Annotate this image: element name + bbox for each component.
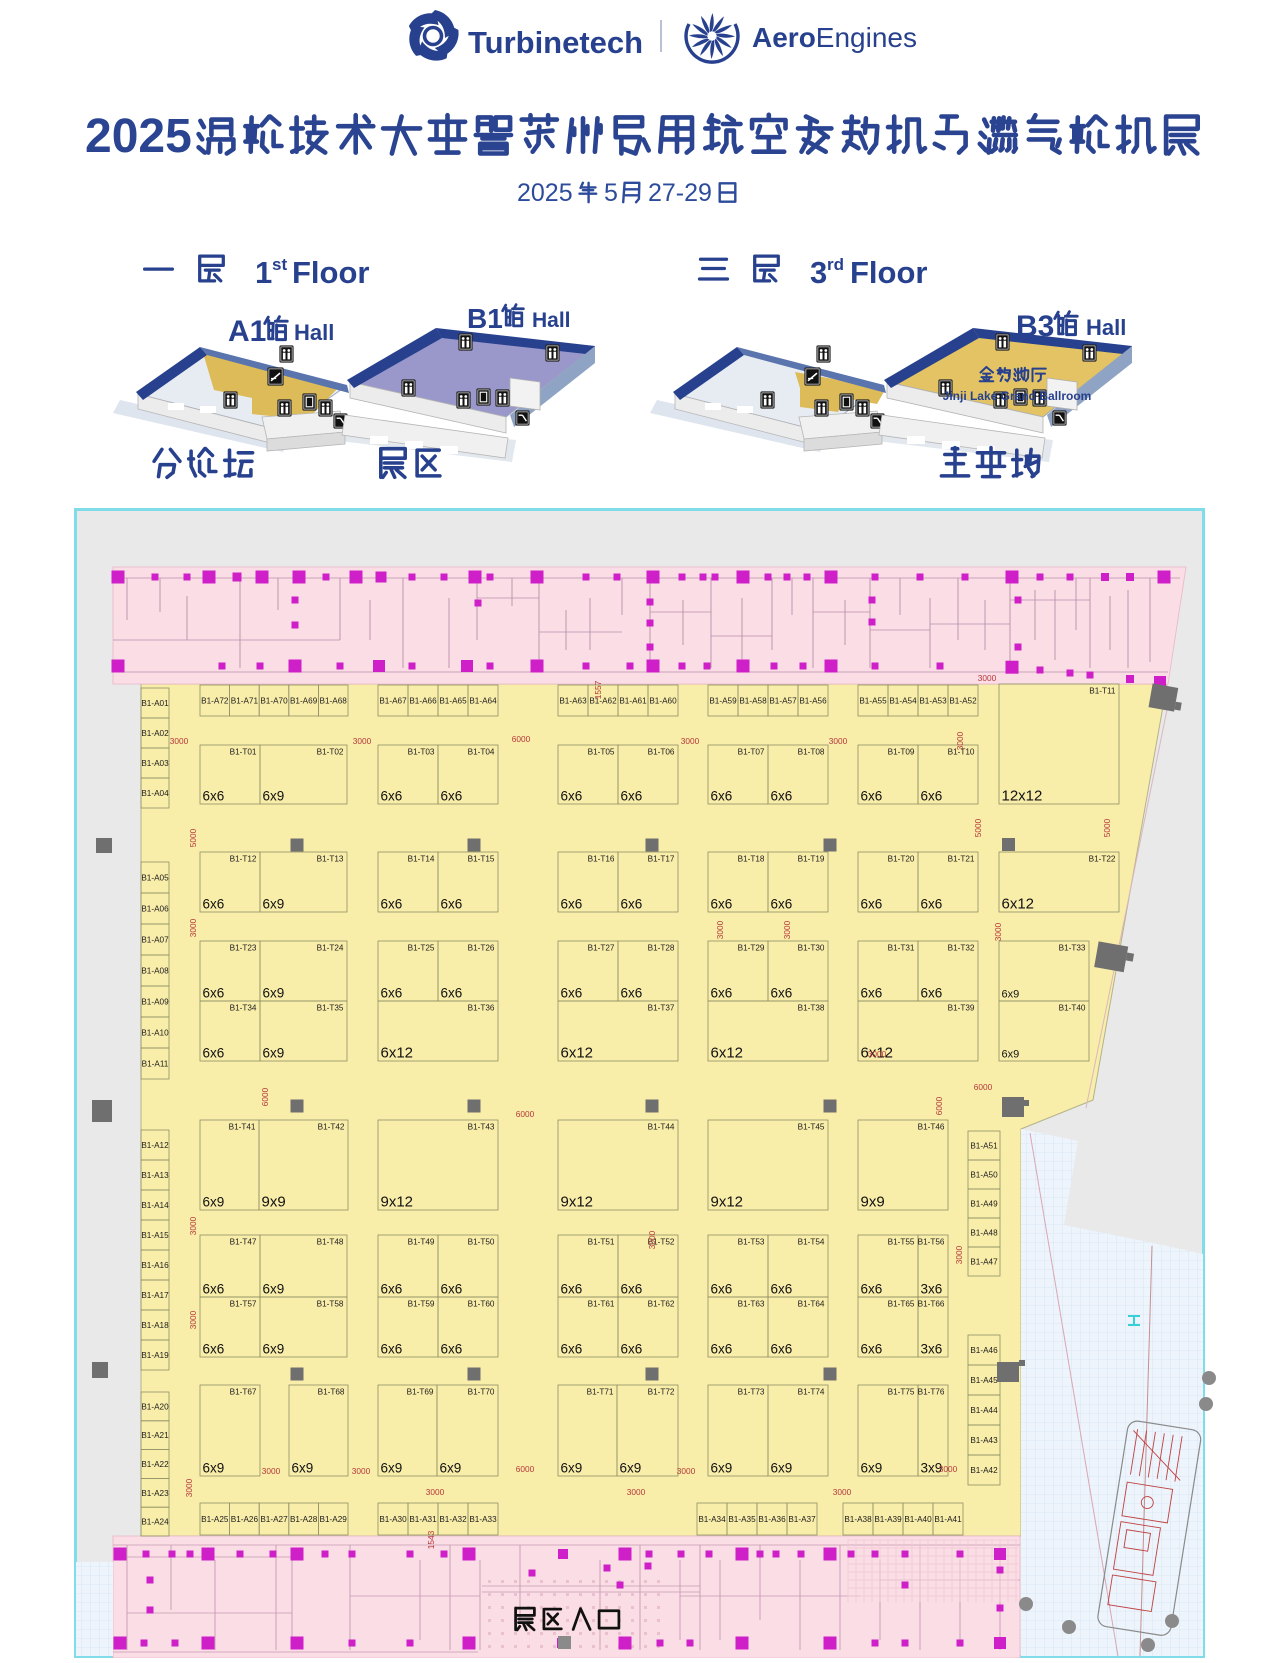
svg-text:6x6: 6x6: [441, 1342, 463, 1357]
svg-text:6x6: 6x6: [381, 1342, 403, 1357]
svg-text:B1-T05: B1-T05: [588, 748, 615, 757]
svg-text:B1-T46: B1-T46: [918, 1123, 945, 1132]
svg-text:6x6: 6x6: [203, 1046, 225, 1061]
svg-text:6x6: 6x6: [381, 897, 403, 912]
svg-text:B1-A24: B1-A24: [141, 1518, 169, 1527]
svg-text:9x12: 9x12: [711, 1194, 744, 1211]
svg-text:9x9: 9x9: [262, 1194, 286, 1211]
svg-text:B1-A52: B1-A52: [949, 697, 977, 706]
svg-text:B1-T24: B1-T24: [317, 944, 344, 953]
svg-text:Floor: Floor: [292, 255, 370, 290]
svg-text:B1-T35: B1-T35: [317, 1004, 344, 1013]
svg-text:6x6: 6x6: [861, 1342, 883, 1357]
svg-text:B1-T76: B1-T76: [918, 1388, 945, 1397]
svg-text:6x9: 6x9: [771, 1461, 793, 1476]
svg-text:B1-A71: B1-A71: [231, 697, 259, 706]
svg-text:B1-A58: B1-A58: [739, 697, 767, 706]
svg-text:rd: rd: [827, 255, 844, 274]
svg-text:B1-T36: B1-T36: [468, 1004, 495, 1013]
svg-text:6x6: 6x6: [711, 986, 733, 1001]
svg-text:6x12: 6x12: [381, 1045, 414, 1062]
svg-text:6x6: 6x6: [441, 897, 463, 912]
svg-text:B1-A66: B1-A66: [409, 697, 437, 706]
svg-text:6x9: 6x9: [263, 1342, 285, 1357]
svg-text:B1-T69: B1-T69: [407, 1388, 434, 1397]
svg-text:B1-A56: B1-A56: [799, 697, 827, 706]
svg-text:B1-A05: B1-A05: [141, 874, 169, 883]
svg-text:B1-A19: B1-A19: [141, 1351, 169, 1360]
svg-text:B1-A21: B1-A21: [141, 1431, 169, 1440]
svg-text:B1-A20: B1-A20: [141, 1402, 169, 1411]
svg-text:B1-T16: B1-T16: [588, 855, 615, 864]
svg-text:B1-A36: B1-A36: [758, 1515, 786, 1524]
svg-text:B1-A15: B1-A15: [141, 1231, 169, 1240]
svg-text:B1-A39: B1-A39: [874, 1515, 902, 1524]
svg-text:B1-T25: B1-T25: [408, 944, 435, 953]
svg-text:B1-A41: B1-A41: [934, 1515, 962, 1524]
svg-text:B1-A11: B1-A11: [142, 1060, 169, 1069]
svg-text:3000: 3000: [715, 920, 725, 939]
svg-text:6000: 6000: [512, 734, 531, 744]
svg-text:1: 1: [255, 255, 272, 290]
svg-text:6x9: 6x9: [292, 1461, 314, 1476]
svg-text:B1-A59: B1-A59: [709, 697, 737, 706]
svg-text:B1-A22: B1-A22: [141, 1460, 169, 1469]
svg-text:B1-T18: B1-T18: [738, 855, 765, 864]
svg-text:B1-T02: B1-T02: [317, 748, 344, 757]
svg-text:B1-T09: B1-T09: [888, 748, 915, 757]
svg-text:6x6: 6x6: [861, 897, 883, 912]
svg-text:6x6: 6x6: [621, 1282, 643, 1297]
svg-text:3000: 3000: [184, 1478, 194, 1497]
svg-text:6x9: 6x9: [263, 1282, 285, 1297]
svg-text:6x6: 6x6: [561, 897, 583, 912]
svg-text:B1-T08: B1-T08: [798, 748, 825, 757]
svg-text:B1-T28: B1-T28: [648, 944, 675, 953]
svg-text:6x9: 6x9: [561, 1461, 583, 1476]
svg-text:B1-T65: B1-T65: [888, 1300, 915, 1309]
svg-text:B1-A53: B1-A53: [919, 697, 947, 706]
svg-text:6x12: 6x12: [711, 1045, 744, 1062]
svg-text:B1-A70: B1-A70: [260, 697, 288, 706]
svg-text:B1-T21: B1-T21: [948, 855, 975, 864]
svg-text:6x6: 6x6: [861, 986, 883, 1001]
svg-text:6x6: 6x6: [771, 986, 793, 1001]
svg-text:B1-T04: B1-T04: [468, 748, 495, 757]
svg-text:B1-T59: B1-T59: [408, 1300, 435, 1309]
svg-text:6x6: 6x6: [561, 789, 583, 804]
svg-text:6x6: 6x6: [861, 789, 883, 804]
svg-text:6x6: 6x6: [771, 897, 793, 912]
svg-text:B1-A32: B1-A32: [439, 1515, 467, 1524]
svg-text:B1-A09: B1-A09: [141, 998, 169, 1007]
svg-text:B1-T58: B1-T58: [317, 1300, 344, 1309]
svg-text:B1-A61: B1-A61: [619, 697, 647, 706]
svg-text:B1-T72: B1-T72: [648, 1388, 675, 1397]
svg-text:B1-T67: B1-T67: [230, 1388, 257, 1397]
svg-text:6x9: 6x9: [861, 1461, 883, 1476]
svg-text:Floor: Floor: [850, 255, 928, 290]
svg-text:6x9: 6x9: [263, 1046, 285, 1061]
svg-text:5000: 5000: [188, 828, 198, 847]
svg-text:Hall: Hall: [294, 320, 334, 345]
svg-text:3000: 3000: [677, 1466, 696, 1476]
svg-text:6x6: 6x6: [921, 789, 943, 804]
svg-text:B1-T45: B1-T45: [798, 1123, 825, 1132]
svg-text:3000: 3000: [170, 736, 189, 746]
svg-text:B1-T39: B1-T39: [948, 1004, 975, 1013]
svg-text:B1-A02: B1-A02: [141, 729, 169, 738]
svg-text:B1-T68: B1-T68: [318, 1388, 345, 1397]
svg-text:B1-T14: B1-T14: [408, 855, 435, 864]
svg-text:B1-A64: B1-A64: [469, 697, 497, 706]
svg-text:B1-T47: B1-T47: [230, 1238, 257, 1247]
svg-text:6x6: 6x6: [561, 986, 583, 1001]
svg-text:6x6: 6x6: [561, 1342, 583, 1357]
svg-text:B1-A50: B1-A50: [970, 1171, 998, 1180]
svg-text:3000: 3000: [188, 918, 198, 937]
svg-text:6x6: 6x6: [381, 789, 403, 804]
svg-text:B1-A10: B1-A10: [141, 1029, 169, 1038]
svg-text:3000: 3000: [262, 1466, 281, 1476]
svg-text:2025: 2025: [517, 179, 573, 207]
svg-text:6x6: 6x6: [203, 897, 225, 912]
svg-text:3x6: 3x6: [921, 1282, 943, 1297]
svg-text:B1-A07: B1-A07: [141, 936, 169, 945]
svg-text:6x6: 6x6: [203, 1342, 225, 1357]
svg-text:B1-A54: B1-A54: [889, 697, 917, 706]
svg-text:B1-T19: B1-T19: [798, 855, 825, 864]
svg-text:6x6: 6x6: [621, 789, 643, 804]
svg-text:Hall: Hall: [1086, 315, 1126, 340]
svg-text:B1-A51: B1-A51: [970, 1142, 998, 1151]
svg-text:B1-T62: B1-T62: [648, 1300, 675, 1309]
svg-text:B1-T34: B1-T34: [230, 1004, 257, 1013]
svg-text:B1-A68: B1-A68: [320, 697, 348, 706]
svg-text:6x9: 6x9: [1002, 989, 1020, 1001]
svg-text:6x6: 6x6: [921, 986, 943, 1001]
svg-text:3000: 3000: [868, 1049, 887, 1059]
svg-text:B1-A65: B1-A65: [439, 697, 467, 706]
svg-text:3000: 3000: [426, 1487, 445, 1497]
svg-text:B1-T26: B1-T26: [468, 944, 495, 953]
svg-text:B1-A37: B1-A37: [788, 1515, 816, 1524]
svg-text:B1-T07: B1-T07: [738, 748, 765, 757]
svg-text:6x9: 6x9: [203, 1195, 225, 1210]
svg-text:2025: 2025: [85, 110, 192, 163]
svg-text:B1-T49: B1-T49: [408, 1238, 435, 1247]
svg-text:3000: 3000: [782, 920, 792, 939]
svg-text:B1-T41: B1-T41: [229, 1123, 256, 1132]
svg-text:B1-T50: B1-T50: [468, 1238, 495, 1247]
svg-text:B1-T64: B1-T64: [798, 1300, 825, 1309]
svg-text:Turbinetech: Turbinetech: [468, 25, 643, 60]
svg-text:3000: 3000: [188, 1216, 198, 1235]
svg-text:6x6: 6x6: [621, 1342, 643, 1357]
svg-text:B1-A60: B1-A60: [649, 697, 677, 706]
svg-text:B1-A13: B1-A13: [141, 1171, 169, 1180]
svg-text:6x9: 6x9: [440, 1461, 462, 1476]
svg-text:6x9: 6x9: [711, 1461, 733, 1476]
svg-text:B1-A43: B1-A43: [970, 1436, 998, 1445]
svg-text:B1-T06: B1-T06: [648, 748, 675, 757]
svg-text:B1-T71: B1-T71: [587, 1388, 614, 1397]
svg-text:6x9: 6x9: [620, 1461, 642, 1476]
svg-text:6x6: 6x6: [441, 986, 463, 1001]
svg-text:5: 5: [604, 179, 618, 207]
svg-text:B1-T37: B1-T37: [648, 1004, 675, 1013]
svg-text:B1-A46: B1-A46: [970, 1346, 998, 1355]
svg-text:B1-A27: B1-A27: [260, 1515, 288, 1524]
svg-text:B1-T15: B1-T15: [468, 855, 495, 864]
svg-text:B1-T11: B1-T11: [1089, 687, 1116, 696]
svg-text:3000: 3000: [352, 1466, 371, 1476]
svg-text:6x9: 6x9: [1002, 1049, 1020, 1061]
svg-text:Jinji Lake Grand Ballroom: Jinji Lake Grand Ballroom: [943, 389, 1092, 403]
svg-text:B1-T30: B1-T30: [798, 944, 825, 953]
svg-text:B1-T13: B1-T13: [317, 855, 344, 864]
svg-text:B1-T43: B1-T43: [468, 1123, 495, 1132]
svg-text:6x12: 6x12: [1002, 896, 1035, 913]
svg-text:B1-T74: B1-T74: [798, 1388, 825, 1397]
svg-text:B1-A67: B1-A67: [379, 697, 407, 706]
svg-text:B1-A12: B1-A12: [141, 1141, 169, 1150]
svg-text:B1-T20: B1-T20: [888, 855, 915, 864]
svg-text:B1-T51: B1-T51: [588, 1238, 615, 1247]
svg-text:6x6: 6x6: [711, 897, 733, 912]
svg-text:3000: 3000: [939, 1464, 958, 1474]
svg-text:3000: 3000: [829, 736, 848, 746]
svg-text:B1-T63: B1-T63: [738, 1300, 765, 1309]
svg-text:3000: 3000: [978, 673, 997, 683]
svg-text:6000: 6000: [974, 1082, 993, 1092]
svg-text:6x9: 6x9: [203, 1461, 225, 1476]
svg-text:3x6: 3x6: [921, 1342, 943, 1357]
svg-text:B1-T23: B1-T23: [230, 944, 257, 953]
svg-text:3000: 3000: [993, 922, 1003, 941]
svg-text:5000: 5000: [973, 818, 983, 837]
svg-text:B1-A72: B1-A72: [201, 697, 229, 706]
svg-text:B1-A55: B1-A55: [859, 697, 887, 706]
svg-text:B1-A38: B1-A38: [844, 1515, 872, 1524]
svg-text:3000: 3000: [681, 736, 700, 746]
svg-text:3000: 3000: [647, 1230, 657, 1249]
svg-text:6x6: 6x6: [711, 1342, 733, 1357]
svg-text:6x6: 6x6: [441, 789, 463, 804]
svg-text:1557: 1557: [593, 680, 603, 699]
svg-text:3000: 3000: [955, 731, 965, 750]
svg-text:6000: 6000: [260, 1087, 270, 1106]
svg-text:B1-T66: B1-T66: [918, 1300, 945, 1309]
svg-text:6x6: 6x6: [771, 1282, 793, 1297]
svg-text:B1-A47: B1-A47: [970, 1258, 998, 1267]
svg-text:B1-A14: B1-A14: [141, 1201, 169, 1210]
svg-text:st: st: [272, 255, 287, 274]
svg-text:12x12: 12x12: [1002, 788, 1043, 805]
svg-text:6x6: 6x6: [203, 1282, 225, 1297]
svg-text:B1-T32: B1-T32: [948, 944, 975, 953]
svg-text:B1-T42: B1-T42: [318, 1123, 345, 1132]
svg-text:B1-A34: B1-A34: [698, 1515, 726, 1524]
svg-text:B1-A06: B1-A06: [141, 905, 169, 914]
svg-text:B1-A17: B1-A17: [141, 1291, 169, 1300]
svg-text:B1-A26: B1-A26: [231, 1515, 259, 1524]
svg-text:B1-A31: B1-A31: [409, 1515, 437, 1524]
svg-text:AeroEngines: AeroEngines: [752, 22, 917, 53]
svg-text:9x9: 9x9: [861, 1194, 885, 1211]
svg-text:B1-T27: B1-T27: [588, 944, 615, 953]
svg-text:B1-T03: B1-T03: [408, 748, 435, 757]
svg-text:B1-A49: B1-A49: [970, 1200, 998, 1209]
svg-text:6x6: 6x6: [203, 986, 225, 1001]
svg-text:B1-A18: B1-A18: [141, 1321, 169, 1330]
svg-text:B1-A69: B1-A69: [290, 697, 318, 706]
svg-text:B1-T53: B1-T53: [738, 1238, 765, 1247]
svg-text:B1-A33: B1-A33: [469, 1515, 497, 1524]
svg-text:6x6: 6x6: [381, 1282, 403, 1297]
svg-text:B1-A23: B1-A23: [141, 1489, 169, 1498]
svg-text:6x6: 6x6: [771, 1342, 793, 1357]
svg-text:1543: 1543: [426, 1530, 436, 1549]
svg-text:B1-T22: B1-T22: [1089, 855, 1116, 864]
svg-text:B1-A30: B1-A30: [379, 1515, 407, 1524]
svg-text:3000: 3000: [954, 1245, 964, 1264]
svg-text:6x6: 6x6: [203, 789, 225, 804]
svg-text:6x6: 6x6: [621, 986, 643, 1001]
svg-text:B1-T17: B1-T17: [648, 855, 675, 864]
svg-text:6x6: 6x6: [711, 789, 733, 804]
svg-text:B1-T31: B1-T31: [888, 944, 915, 953]
svg-text:B1-T55: B1-T55: [888, 1238, 915, 1247]
svg-text:3000: 3000: [353, 736, 372, 746]
svg-text:6x6: 6x6: [771, 789, 793, 804]
svg-text:B1-A03: B1-A03: [141, 759, 169, 768]
svg-text:B1-A42: B1-A42: [970, 1466, 998, 1475]
svg-text:6x9: 6x9: [381, 1461, 403, 1476]
svg-text:Hall: Hall: [532, 309, 571, 332]
svg-text:B1-A01: B1-A01: [141, 699, 169, 708]
svg-text:B1-A48: B1-A48: [970, 1229, 998, 1238]
svg-text:A1: A1: [228, 315, 266, 348]
svg-text:B1-A63: B1-A63: [559, 697, 587, 706]
svg-text:B1-T33: B1-T33: [1059, 944, 1086, 953]
svg-text:6x6: 6x6: [441, 1282, 463, 1297]
svg-text:B1-T73: B1-T73: [738, 1388, 765, 1397]
svg-text:3000: 3000: [627, 1487, 646, 1497]
svg-text:6x6: 6x6: [711, 1282, 733, 1297]
svg-text:B1-A08: B1-A08: [141, 967, 169, 976]
svg-text:3: 3: [810, 255, 827, 290]
svg-text:B1-A04: B1-A04: [141, 789, 169, 798]
svg-text:6000: 6000: [516, 1109, 535, 1119]
svg-text:B1-T38: B1-T38: [798, 1004, 825, 1013]
svg-text:B1-T29: B1-T29: [738, 944, 765, 953]
svg-text:6x6: 6x6: [621, 897, 643, 912]
svg-text:B1-T12: B1-T12: [230, 855, 257, 864]
svg-text:B1-T01: B1-T01: [230, 748, 257, 757]
svg-text:B1-A40: B1-A40: [904, 1515, 932, 1524]
svg-text:B1-T57: B1-T57: [230, 1300, 257, 1309]
svg-text:B1-T44: B1-T44: [648, 1123, 675, 1132]
svg-text:B1-A25: B1-A25: [201, 1515, 229, 1524]
svg-text:9x12: 9x12: [561, 1194, 594, 1211]
svg-text:6x9: 6x9: [263, 897, 285, 912]
svg-text:6x12: 6x12: [561, 1045, 594, 1062]
svg-text:27-29: 27-29: [648, 179, 712, 207]
svg-text:6x9: 6x9: [263, 986, 285, 1001]
svg-text:6x6: 6x6: [861, 1282, 883, 1297]
svg-text:6x6: 6x6: [561, 1282, 583, 1297]
svg-text:6000: 6000: [516, 1464, 535, 1474]
svg-text:9x12: 9x12: [381, 1194, 414, 1211]
svg-text:B1: B1: [467, 303, 503, 334]
svg-text:5000: 5000: [1102, 818, 1112, 837]
svg-text:6x6: 6x6: [381, 986, 403, 1001]
svg-text:B1-A29: B1-A29: [320, 1515, 348, 1524]
svg-text:B1-T54: B1-T54: [798, 1238, 825, 1247]
svg-text:B1-T56: B1-T56: [918, 1238, 945, 1247]
svg-text:3000: 3000: [188, 1310, 198, 1329]
svg-text:B1-A44: B1-A44: [970, 1406, 998, 1415]
svg-text:B1-T61: B1-T61: [588, 1300, 615, 1309]
svg-text:B1-A16: B1-A16: [141, 1261, 169, 1270]
svg-text:B1-A28: B1-A28: [290, 1515, 318, 1524]
svg-text:B1-T70: B1-T70: [468, 1388, 495, 1397]
svg-text:B1-A45: B1-A45: [970, 1376, 998, 1385]
svg-text:3000: 3000: [833, 1487, 852, 1497]
svg-text:6x9: 6x9: [263, 789, 285, 804]
svg-text:B1-A57: B1-A57: [769, 697, 797, 706]
svg-text:6000: 6000: [934, 1096, 944, 1115]
svg-text:B1-A35: B1-A35: [728, 1515, 756, 1524]
svg-text:B1-T60: B1-T60: [468, 1300, 495, 1309]
svg-text:6x6: 6x6: [921, 897, 943, 912]
svg-text:B1-T75: B1-T75: [888, 1388, 915, 1397]
svg-text:B1-T48: B1-T48: [317, 1238, 344, 1247]
svg-text:B1-T40: B1-T40: [1059, 1004, 1086, 1013]
